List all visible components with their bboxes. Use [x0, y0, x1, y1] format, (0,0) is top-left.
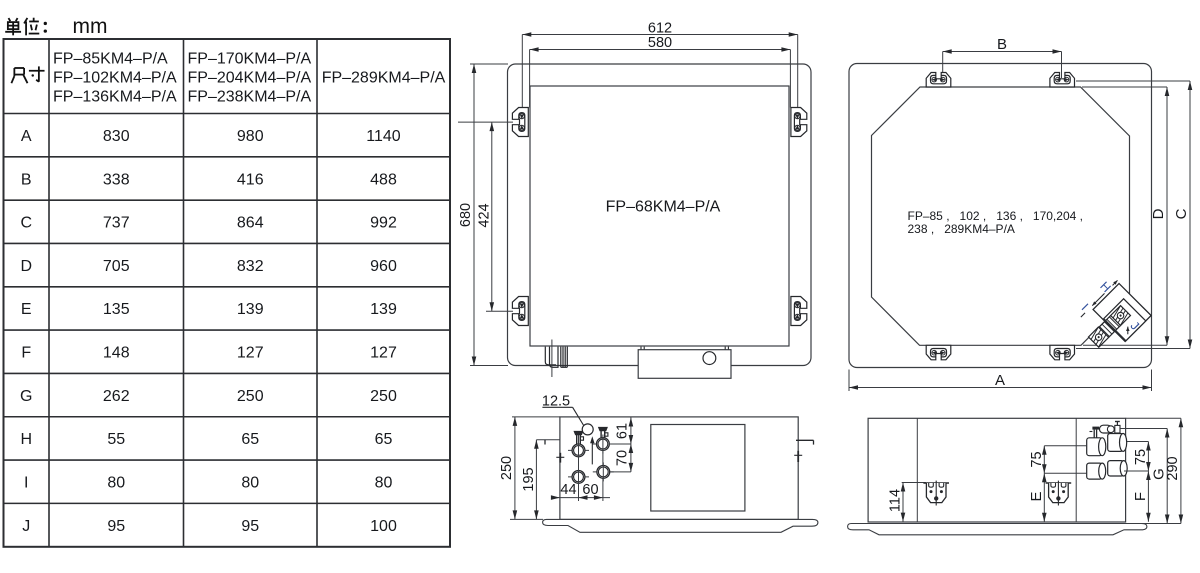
svg-text:830: 830: [103, 128, 130, 145]
svg-text:A: A: [21, 128, 32, 145]
svg-text:80: 80: [107, 475, 125, 492]
svg-text:262: 262: [103, 388, 130, 405]
svg-text:250: 250: [499, 456, 515, 480]
svg-text:A: A: [995, 372, 1005, 389]
svg-text:D: D: [20, 258, 32, 275]
svg-text:832: 832: [237, 258, 264, 275]
svg-text:1140: 1140: [366, 128, 401, 145]
svg-text:D: D: [1150, 208, 1167, 219]
svg-text:G: G: [20, 388, 32, 405]
svg-text:238 , 289KM4–P/A: 238 , 289KM4–P/A: [908, 222, 1015, 236]
svg-text:E: E: [21, 301, 32, 318]
svg-text:FP–238KM4–P/A: FP–238KM4–P/A: [188, 89, 312, 106]
svg-text:C: C: [1173, 208, 1190, 219]
svg-text:148: 148: [103, 345, 130, 362]
svg-text:12.5: 12.5: [542, 394, 570, 410]
svg-text:80: 80: [241, 475, 259, 492]
svg-text:FP–204KM4–P/A: FP–204KM4–P/A: [188, 70, 312, 87]
svg-text:44: 44: [560, 482, 576, 498]
svg-text:C: C: [20, 215, 32, 232]
svg-text:55: 55: [107, 431, 125, 448]
svg-text:J: J: [22, 518, 30, 535]
svg-text:70: 70: [615, 450, 631, 466]
svg-text:I: I: [24, 475, 28, 492]
svg-text:FP–85 , 102 , 136 , 170,: FP–85 , 102 , 136 , 170,204 ,: [908, 209, 1083, 223]
svg-text:195: 195: [521, 467, 537, 491]
svg-text:FP–170KM4–P/A: FP–170KM4–P/A: [188, 51, 312, 68]
svg-text:mm: mm: [73, 15, 108, 38]
svg-text:705: 705: [103, 258, 130, 275]
svg-text:B: B: [21, 171, 32, 188]
svg-text:250: 250: [237, 388, 264, 405]
svg-text:95: 95: [241, 518, 259, 535]
svg-text:F: F: [1132, 492, 1149, 501]
svg-text:80: 80: [375, 475, 393, 492]
svg-text:61: 61: [615, 423, 631, 439]
svg-text:680: 680: [458, 203, 474, 227]
svg-text:980: 980: [237, 128, 264, 145]
svg-text:127: 127: [237, 345, 264, 362]
svg-text:488: 488: [370, 171, 397, 188]
svg-text:960: 960: [370, 258, 397, 275]
svg-text:FP–136KM4–P/A: FP–136KM4–P/A: [53, 89, 177, 106]
svg-text:290: 290: [1165, 456, 1181, 480]
svg-text:992: 992: [370, 215, 397, 232]
svg-text:65: 65: [241, 431, 259, 448]
svg-text:H: H: [20, 431, 32, 448]
svg-text:75: 75: [1029, 451, 1045, 467]
svg-text:FP–102KM4–P/A: FP–102KM4–P/A: [53, 70, 177, 87]
svg-text:416: 416: [237, 171, 264, 188]
svg-text:737: 737: [103, 215, 130, 232]
svg-text:F: F: [21, 345, 31, 362]
svg-text:139: 139: [237, 301, 264, 318]
svg-text:65: 65: [375, 431, 393, 448]
svg-text:75: 75: [1133, 449, 1149, 465]
svg-text:FP–85KM4–P/A: FP–85KM4–P/A: [53, 51, 168, 68]
svg-text:612: 612: [648, 20, 672, 36]
svg-text:114: 114: [888, 489, 904, 512]
svg-text:135: 135: [103, 301, 130, 318]
svg-text:FP–289KM4–P/A: FP–289KM4–P/A: [322, 70, 446, 87]
svg-text:FP–68KM4–P/A: FP–68KM4–P/A: [606, 199, 721, 216]
svg-text:338: 338: [103, 171, 130, 188]
svg-text:250: 250: [370, 388, 397, 405]
svg-text:580: 580: [648, 35, 672, 51]
svg-text:E: E: [1028, 491, 1045, 501]
svg-text:100: 100: [370, 518, 397, 535]
svg-text:95: 95: [107, 518, 125, 535]
svg-text:864: 864: [237, 215, 264, 232]
svg-text:60: 60: [582, 482, 598, 498]
svg-text:139: 139: [370, 301, 397, 318]
svg-text:B: B: [997, 36, 1007, 53]
svg-text:127: 127: [370, 345, 397, 362]
svg-text:424: 424: [476, 203, 492, 227]
